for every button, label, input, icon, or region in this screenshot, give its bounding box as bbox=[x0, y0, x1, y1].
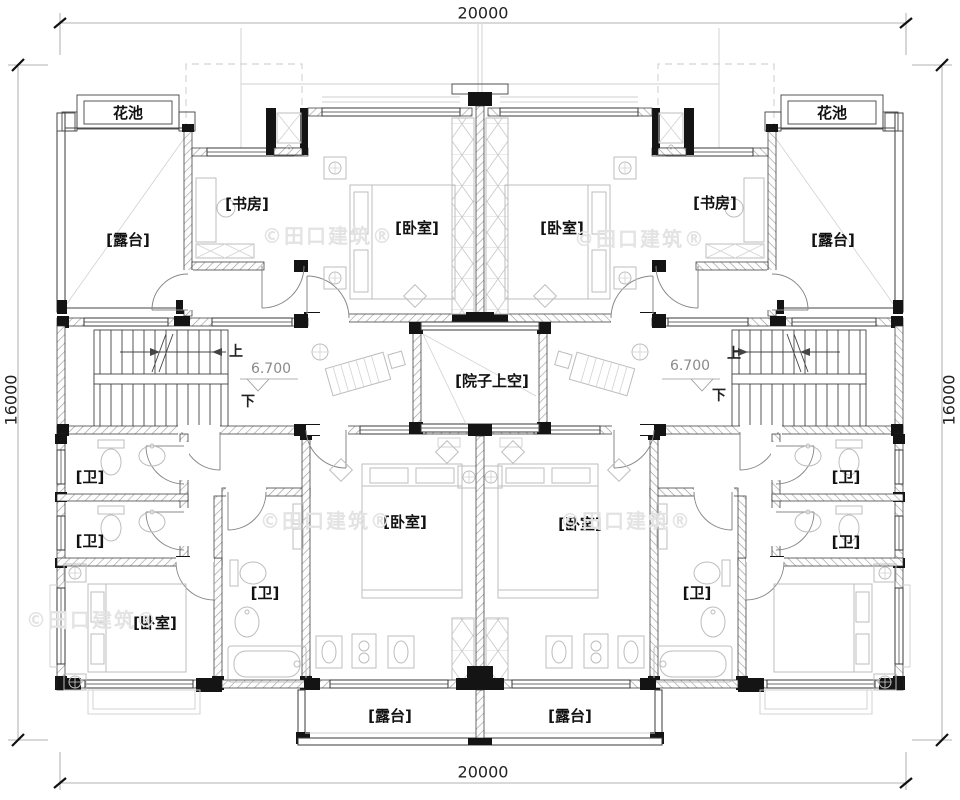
room-label-courtyard: [院子上空] bbox=[455, 372, 529, 390]
stair-direction-up-right: 上 bbox=[727, 346, 741, 362]
stair-direction-down-left: 下 bbox=[241, 394, 255, 410]
dimension-top: 20000 bbox=[458, 4, 509, 23]
room-label-bath-right-mid: [卫] bbox=[683, 584, 712, 602]
dimension-right: 16000 bbox=[940, 375, 959, 426]
room-label-bath-right-1: [卫] bbox=[832, 468, 861, 486]
room-label-bath-left-2: [卫] bbox=[76, 532, 105, 550]
room-label-bath-left-mid: [卫] bbox=[251, 584, 280, 602]
room-label-study-right: [书房] bbox=[693, 194, 737, 212]
watermark: ©田口建筑® bbox=[560, 509, 692, 533]
watermark: ©田口建筑® bbox=[262, 224, 394, 248]
room-label-flower-bed-left: 花池 bbox=[113, 104, 143, 122]
elevation-marker-right: 6.700 bbox=[670, 358, 710, 374]
floor-plan-canvas: 20000 20000 16000 16000 花池 花池 [露台] [露台] … bbox=[0, 0, 960, 800]
elevation-marker-left: 6.700 bbox=[251, 361, 291, 377]
room-label-bath-left-1: [卫] bbox=[76, 468, 105, 486]
watermark: ©田口建筑® bbox=[574, 227, 706, 251]
dimension-bottom: 20000 bbox=[458, 763, 509, 782]
room-label-terrace-bottom-left: [露台] bbox=[368, 707, 412, 725]
room-label-terrace-bottom-right: [露台] bbox=[548, 707, 592, 725]
room-label-terrace-top-left: [露台] bbox=[106, 231, 150, 249]
floor-plan-svg: 20000 20000 16000 16000 花池 花池 [露台] [露台] … bbox=[0, 0, 960, 800]
watermark: ©田口建筑® bbox=[26, 608, 158, 632]
stair-direction-up-left: 上 bbox=[229, 344, 243, 360]
dimension-left: 16000 bbox=[2, 375, 21, 426]
room-label-study-left: [书房] bbox=[225, 195, 269, 213]
room-label-flower-bed-right: 花池 bbox=[817, 104, 847, 122]
stair-direction-down-right: 下 bbox=[712, 388, 726, 404]
watermark: ©田口建筑® bbox=[260, 509, 392, 533]
room-label-bedroom-top-left: [卧室] bbox=[395, 219, 439, 237]
room-label-terrace-top-right: [露台] bbox=[811, 231, 855, 249]
room-label-bath-right-2: [卫] bbox=[832, 533, 861, 551]
